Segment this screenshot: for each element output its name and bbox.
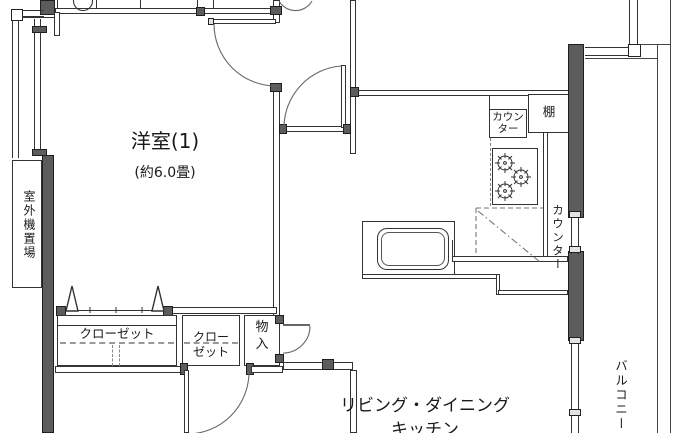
wall-line (489, 96, 491, 110)
wall-dark-right-upper (568, 44, 584, 218)
wall-junction-block (350, 87, 359, 97)
wall-corridor-left-lower (273, 88, 280, 318)
door-swing-icon (283, 326, 310, 353)
room-label-western-room: 洋室(1) (95, 130, 235, 152)
label-closet-small-line1: クロー (186, 331, 236, 344)
label-closet-small-line2: ゼット (186, 346, 236, 359)
balcony-top-line (640, 44, 671, 46)
door-panel-western-room (212, 19, 276, 24)
window-connector (569, 211, 581, 218)
closet-hanger-pipe (60, 342, 174, 345)
label-storage-line2: 入 (246, 338, 278, 352)
balcony-top-line (585, 58, 657, 60)
sink-inner (381, 232, 445, 266)
doorway-threshold-ldk (282, 126, 347, 132)
door-swing-icon (284, 66, 341, 126)
door-jamb (270, 6, 282, 15)
balcony-railing-outer (670, 0, 672, 433)
door-jamb (279, 124, 287, 134)
wall-outer-left (12, 20, 19, 158)
door-panel-ldk (341, 65, 346, 128)
door-panel-bottom-room (184, 370, 189, 433)
wall-washroom-bottom (55, 8, 277, 14)
door-swing-icon (279, 1, 312, 11)
wall-bottom-3 (283, 362, 353, 370)
door-jamb (343, 124, 351, 134)
kitchen-dashed-outline (490, 138, 492, 206)
stove (492, 148, 538, 205)
closet-dashed-line (119, 345, 121, 366)
window-connector (569, 246, 581, 253)
label-shelf: 棚 (534, 105, 564, 119)
room-label-ldk-line2: キッチン (335, 421, 515, 433)
room-size-western-room: (約6.0畳) (95, 166, 235, 181)
closet-dashed-line (112, 345, 114, 366)
window-cap-top (32, 26, 47, 33)
window-connector (569, 409, 581, 416)
label-counter-upper-line2: ター (490, 124, 526, 136)
label-counter-side: カウンター (548, 183, 563, 293)
wall-bottom-1 (55, 366, 183, 373)
label-counter-upper-line1: カウン (490, 112, 526, 124)
floor-plan: 洋室(1) (約6.0畳) リビング・ダイニング キッチン クローゼット クロー… (0, 0, 700, 433)
label-storage-line1: 物 (246, 321, 278, 335)
counter-front-edge (362, 274, 499, 279)
door-swing-icon (214, 24, 276, 86)
wall-junction-block (322, 359, 334, 370)
balcony-railing-inner (657, 45, 659, 433)
wall-bottom-2 (251, 366, 283, 373)
door-jamb (196, 7, 205, 16)
door-jamb (270, 83, 282, 92)
wall-stub-left (54, 12, 60, 36)
folding-door-track (60, 310, 172, 312)
room-label-ldk-line1: リビング・ダイニング (335, 397, 515, 416)
door-panel-cap (208, 18, 214, 25)
label-closet-main: クローゼット (62, 327, 172, 341)
door-swing-icon (187, 372, 249, 433)
wall-dark-right-pillar (568, 251, 584, 341)
folding-door-icon (66, 286, 78, 311)
window-connector (569, 337, 581, 344)
wall-closet-top (170, 307, 277, 314)
label-outdoor-unit-space: 室外機置場 (19, 169, 35, 281)
window-right-2 (571, 340, 579, 433)
wall-dark-left (42, 155, 54, 433)
refrigerator-space-dashes (476, 208, 543, 262)
wall-outer-connector (22, 10, 44, 17)
window-top-vertical (629, 0, 638, 50)
wall-line (452, 240, 454, 257)
window-left (34, 19, 41, 154)
label-balcony: バルコニー (610, 357, 626, 433)
